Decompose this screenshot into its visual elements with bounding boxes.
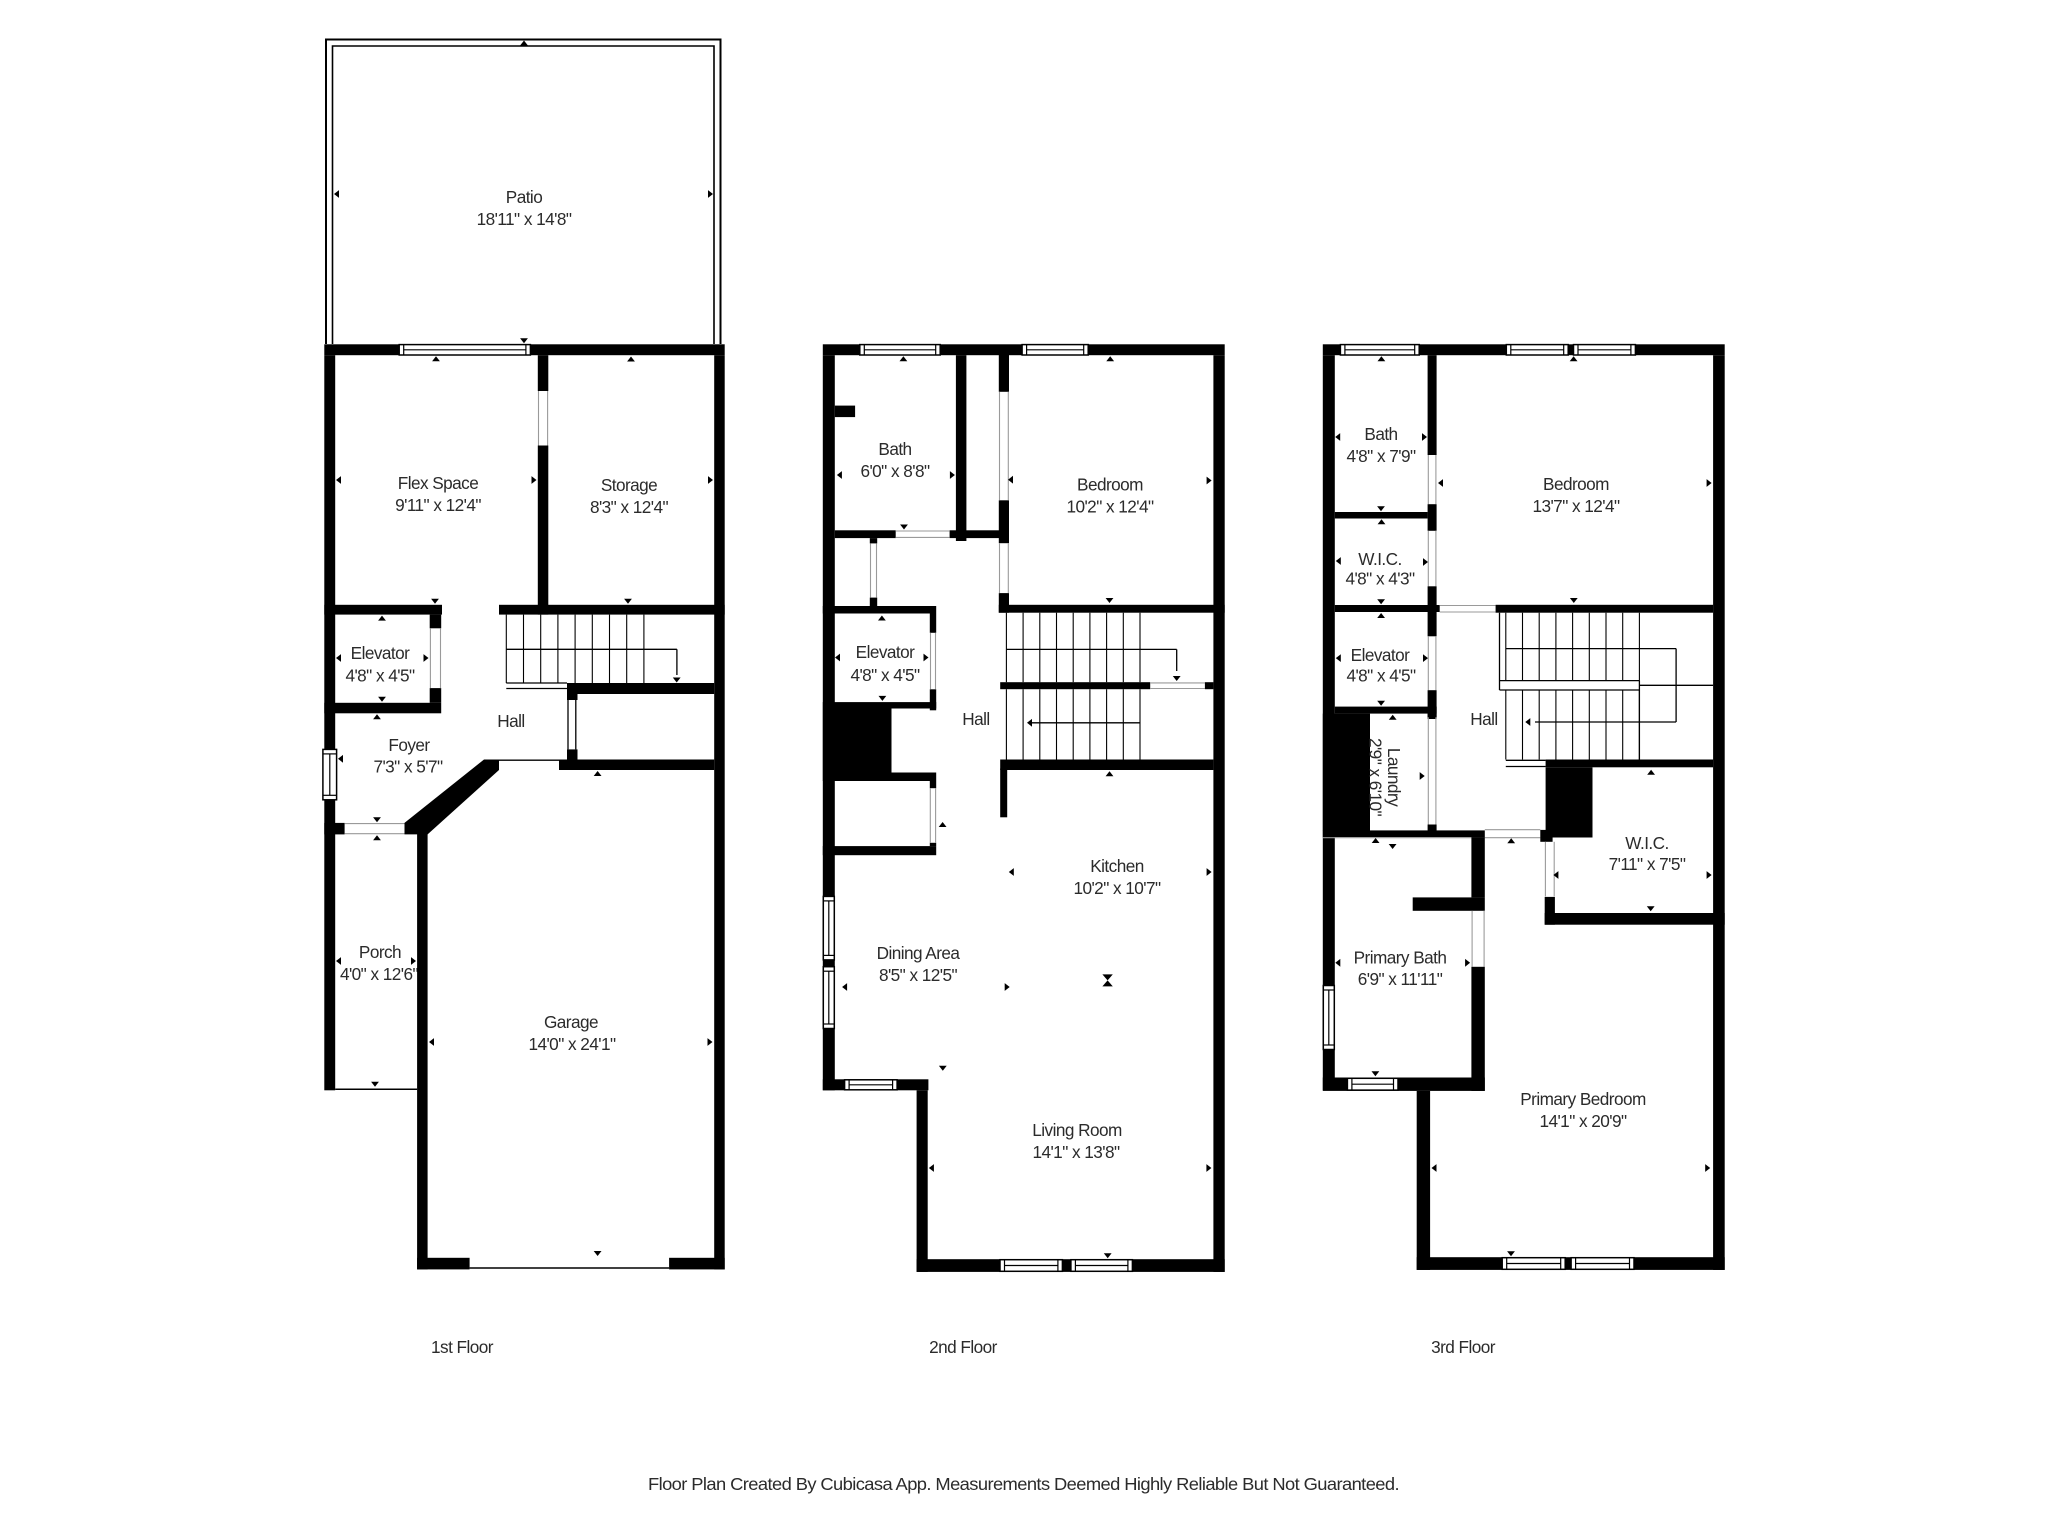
svg-text:Foyer: Foyer bbox=[388, 735, 430, 755]
svg-text:Primary Bath: Primary Bath bbox=[1354, 948, 1447, 968]
svg-text:Laundry: Laundry bbox=[1384, 748, 1404, 807]
svg-text:7'11" x 7'5": 7'11" x 7'5" bbox=[1609, 854, 1686, 874]
svg-text:6'0" x 8'8": 6'0" x 8'8" bbox=[860, 461, 930, 481]
svg-text:9'11" x 12'4": 9'11" x 12'4" bbox=[395, 495, 481, 515]
svg-text:W.I.C.: W.I.C. bbox=[1358, 549, 1402, 569]
svg-text:4'8" x 4'5": 4'8" x 4'5" bbox=[850, 665, 920, 685]
svg-text:Bedroom: Bedroom bbox=[1543, 474, 1609, 494]
svg-text:Living Room: Living Room bbox=[1032, 1120, 1122, 1140]
svg-text:14'1" x 13'8": 14'1" x 13'8" bbox=[1032, 1142, 1120, 1162]
svg-text:Flex Space: Flex Space bbox=[398, 473, 478, 493]
svg-text:Bath: Bath bbox=[1364, 424, 1397, 444]
svg-text:10'2" x 12'4": 10'2" x 12'4" bbox=[1066, 497, 1154, 517]
svg-text:Elevator: Elevator bbox=[856, 642, 915, 662]
svg-text:Storage: Storage bbox=[601, 475, 657, 495]
svg-text:4'8" x 7'9": 4'8" x 7'9" bbox=[1346, 446, 1416, 466]
svg-text:Hall: Hall bbox=[497, 711, 524, 731]
svg-text:W.I.C.: W.I.C. bbox=[1625, 833, 1669, 853]
svg-text:8'5" x 12'5": 8'5" x 12'5" bbox=[879, 965, 958, 985]
svg-text:Kitchen: Kitchen bbox=[1090, 856, 1143, 876]
svg-text:14'0" x 24'1": 14'0" x 24'1" bbox=[528, 1034, 616, 1054]
svg-text:8'3" x 12'4": 8'3" x 12'4" bbox=[590, 497, 669, 517]
svg-text:Garage: Garage bbox=[544, 1012, 598, 1032]
svg-text:13'7" x 12'4": 13'7" x 12'4" bbox=[1532, 496, 1620, 516]
svg-text:10'2" x 10'7": 10'2" x 10'7" bbox=[1073, 878, 1161, 898]
svg-text:7'3" x 5'7": 7'3" x 5'7" bbox=[373, 757, 443, 777]
svg-text:Porch: Porch bbox=[359, 942, 401, 962]
svg-text:4'0" x 12'6": 4'0" x 12'6" bbox=[340, 964, 419, 984]
svg-text:Elevator: Elevator bbox=[351, 643, 410, 663]
svg-text:Dining Area: Dining Area bbox=[877, 943, 961, 963]
svg-text:Hall: Hall bbox=[1470, 709, 1497, 729]
svg-text:4'8" x 4'5": 4'8" x 4'5" bbox=[345, 666, 415, 686]
svg-text:Primary Bedroom: Primary Bedroom bbox=[1520, 1089, 1646, 1109]
svg-text:Hall: Hall bbox=[962, 709, 989, 729]
svg-text:18'11" x 14'8": 18'11" x 14'8" bbox=[477, 209, 572, 229]
svg-text:14'1" x 20'9": 14'1" x 20'9" bbox=[1539, 1111, 1627, 1131]
svg-text:2'9" x 6'10": 2'9" x 6'10" bbox=[1365, 738, 1385, 817]
svg-text:Elevator: Elevator bbox=[1351, 645, 1410, 665]
svg-text:3rd Floor: 3rd Floor bbox=[1431, 1337, 1496, 1357]
svg-text:Bedroom: Bedroom bbox=[1077, 475, 1143, 495]
svg-text:Patio: Patio bbox=[506, 187, 542, 207]
svg-text:4'8" x 4'3": 4'8" x 4'3" bbox=[1345, 569, 1415, 589]
svg-text:4'8" x 4'5": 4'8" x 4'5" bbox=[1346, 666, 1416, 686]
svg-text:Bath: Bath bbox=[878, 439, 911, 459]
svg-text:6'9" x 11'11": 6'9" x 11'11" bbox=[1358, 969, 1443, 989]
svg-text:Floor Plan Created By Cubicasa: Floor Plan Created By Cubicasa App. Meas… bbox=[648, 1474, 1399, 1494]
svg-text:2nd Floor: 2nd Floor bbox=[929, 1337, 997, 1357]
svg-text:1st Floor: 1st Floor bbox=[431, 1337, 494, 1357]
